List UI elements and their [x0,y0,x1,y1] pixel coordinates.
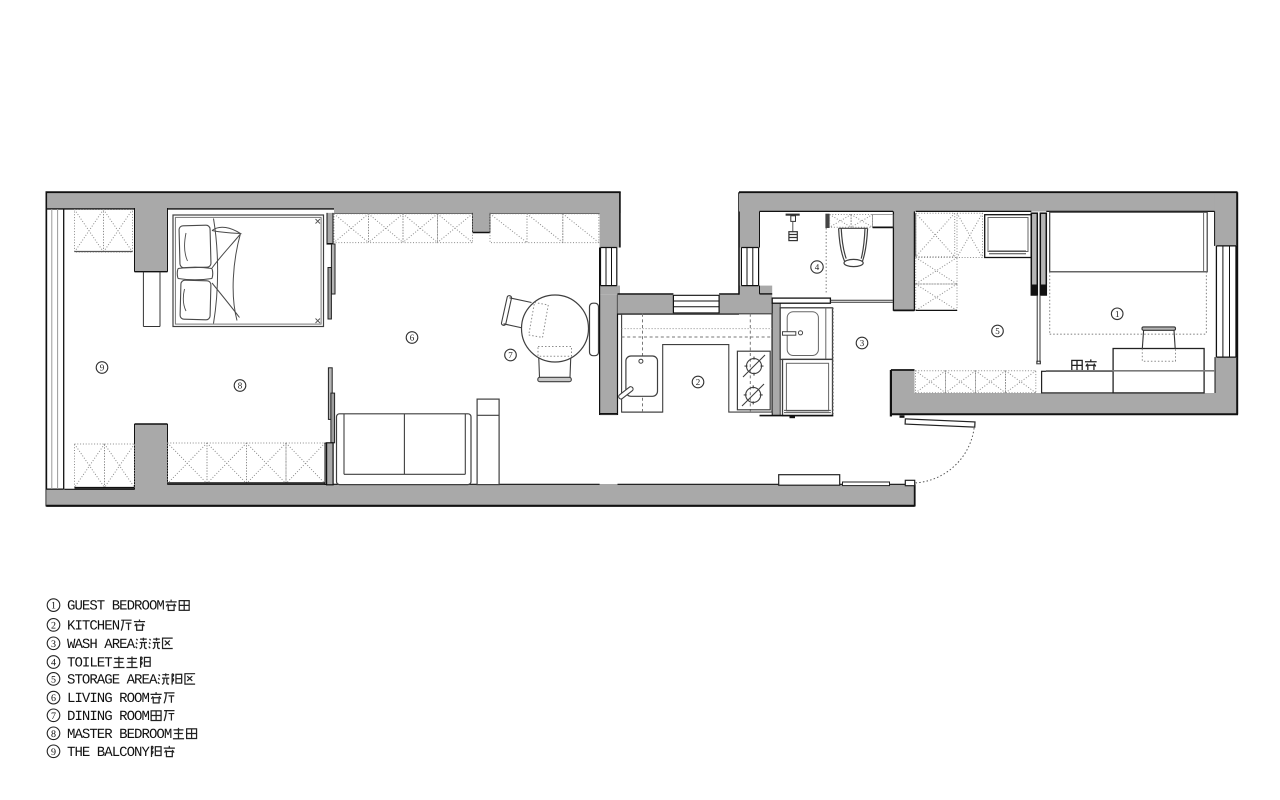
svg-text:5: 5 [51,674,56,685]
svg-text:2: 2 [696,377,701,387]
svg-text:MASTER BEDROOM: MASTER BEDROOM [67,727,172,743]
svg-text:2: 2 [51,620,56,631]
svg-text:5: 5 [995,326,1000,336]
svg-text:STORAGE AREA: STORAGE AREA [67,673,158,689]
svg-text:7: 7 [508,350,513,360]
svg-text:DINING ROOM: DINING ROOM [67,709,150,725]
svg-text:8: 8 [51,729,56,740]
svg-text:6: 6 [410,333,415,343]
svg-text:9: 9 [100,363,105,373]
svg-text:1: 1 [1115,309,1120,319]
svg-text:GUEST BEDROOM: GUEST BEDROOM [67,599,164,615]
svg-text:7: 7 [51,711,56,722]
svg-text:4: 4 [815,262,820,272]
svg-text:LIVING ROOM: LIVING ROOM [67,691,150,707]
svg-text:WASH AREA: WASH AREA [67,637,136,653]
svg-text:9: 9 [51,747,56,758]
svg-text:4: 4 [51,658,56,669]
svg-text:TOILET: TOILET [67,656,112,672]
svg-text:3: 3 [51,639,56,650]
svg-text:6: 6 [51,693,56,704]
svg-text:8: 8 [238,381,243,391]
svg-text:3: 3 [860,338,865,348]
svg-text:1: 1 [51,601,56,612]
svg-text:KITCHEN: KITCHEN [67,619,120,635]
svg-text:THE BALCONY: THE BALCONY [67,745,151,761]
